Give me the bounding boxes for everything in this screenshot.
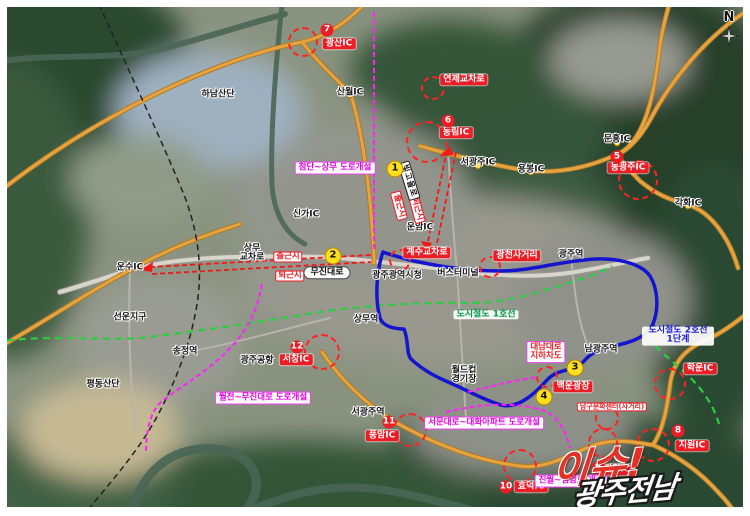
- numbered-marker: 5: [611, 151, 624, 164]
- ic-label: 광천사거리: [493, 250, 540, 261]
- ic-label: 동광주IC: [608, 162, 649, 173]
- place-label: 평동산단: [86, 380, 119, 389]
- place-label: 상무 교차로: [240, 245, 265, 264]
- road-project-label: 월전~무진대로 도로개설: [215, 392, 311, 405]
- place-label: 신가IC: [293, 210, 320, 219]
- transit-line-label: 도시철도 2호선 1단계: [642, 327, 714, 346]
- map-screenshot: 하남산단산월IC신가IC운수IC선운지구송정역광주공항평동산단상무 교차로서광주…: [0, 0, 750, 516]
- numbered-marker: 10: [500, 481, 513, 494]
- ic-label: 연제교차로: [440, 74, 487, 85]
- ic-label: 동림IC: [440, 127, 473, 138]
- place-label: 서광주역: [351, 408, 384, 417]
- ic-label: 광산IC: [323, 38, 356, 49]
- place-label: 선운지구: [113, 313, 146, 322]
- numbered-marker: 1: [387, 161, 404, 178]
- interchange-circle: [654, 368, 686, 400]
- place-label: 남광주역: [584, 345, 617, 354]
- watermark: 이슈! 광주전남: [545, 429, 711, 507]
- numbered-marker: 2: [325, 248, 342, 265]
- traffic-time-label: 출근시: [273, 252, 302, 263]
- road-name-label: 무진대로: [303, 266, 350, 279]
- satellite-map: 하남산단산월IC신가IC운수IC선운지구송정역광주공항평동산단상무 교차로서광주…: [7, 7, 743, 507]
- place-label: 버스터미널: [437, 269, 478, 278]
- road-project-label: 서문대로~대화아파트 도로개설: [424, 417, 544, 430]
- ic-label: 계수교차로: [403, 247, 450, 258]
- place-label: 광주광역시청: [372, 271, 422, 280]
- place-label: 산월IC: [337, 88, 364, 97]
- place-label: 광주역: [559, 250, 584, 259]
- numbered-marker: 12: [291, 341, 304, 354]
- place-label: 운수IC: [117, 263, 144, 272]
- ic-label: 백운광장: [553, 381, 592, 392]
- place-label: 각화IC: [675, 199, 702, 208]
- traffic-time-label: 퇴근시: [275, 271, 304, 282]
- place-label: 광주공항: [240, 356, 273, 365]
- place-label: 하남산단: [201, 90, 234, 99]
- compass-rose-icon: [718, 25, 740, 47]
- numbered-marker: 4: [536, 389, 553, 406]
- ic-label: 풍암IC: [366, 430, 399, 441]
- place-label: 월드컵 경기장: [452, 367, 477, 386]
- place-label: 서광주IC: [461, 158, 496, 167]
- road-project-label: 첨단~상무 도로개설: [295, 162, 376, 175]
- numbered-marker: 3: [567, 360, 584, 377]
- numbered-marker: 6: [442, 115, 455, 128]
- place-label: 상무역: [354, 315, 379, 324]
- underpass-label: 대남대로 지하차도: [526, 341, 565, 363]
- traffic-time-label: 출근시: [390, 190, 408, 221]
- place-label: 운암IC: [407, 223, 434, 232]
- interchange-circle: [288, 27, 318, 57]
- place-label: 용봉IC: [518, 165, 545, 174]
- place-label: 문흥IC: [604, 135, 631, 144]
- traffic-time-label: 남구문화센터(사거리): [577, 402, 647, 411]
- place-label: 송정역: [173, 347, 198, 356]
- compass-rose: N: [716, 10, 742, 51]
- transit-line-label: 도시철도 1호선: [453, 310, 518, 319]
- ic-label: 학운IC: [684, 363, 717, 374]
- compass-north-label: N: [716, 10, 742, 25]
- interchange-circle: [503, 449, 537, 483]
- ic-label: 서창IC: [280, 354, 313, 365]
- numbered-marker: 11: [383, 416, 396, 429]
- numbered-marker: 7: [321, 24, 334, 37]
